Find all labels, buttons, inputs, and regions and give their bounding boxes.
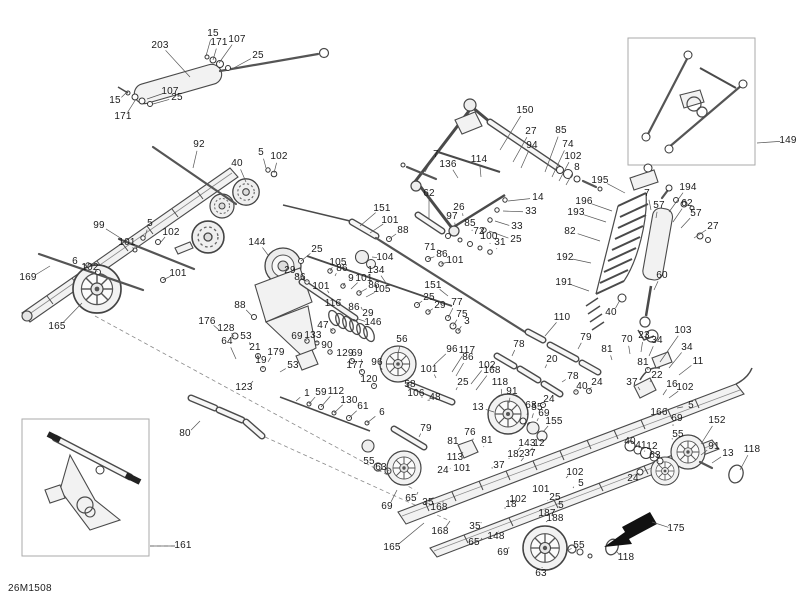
- leader-line-78: [512, 350, 515, 356]
- leader-line-118: [740, 455, 748, 470]
- leader-line-114: [480, 166, 481, 177]
- leader-line-3: [458, 326, 461, 331]
- leader-line-5: [145, 230, 147, 237]
- leader-line-129: [351, 358, 352, 361]
- leader-line-29: [428, 309, 433, 312]
- leader-line-64: [231, 347, 236, 359]
- leader-line-188: [546, 521, 547, 522]
- leader-line-128: [232, 333, 234, 337]
- leader-line-123: [250, 381, 253, 384]
- leader-line-69: [391, 490, 397, 502]
- leader-line-63: [388, 470, 389, 471]
- leader-line-20: [545, 365, 547, 368]
- leader-line-56: [398, 346, 400, 354]
- leader-line-149: [757, 141, 780, 143]
- leader-line-92: [193, 151, 197, 168]
- leader-line-25: [417, 301, 422, 305]
- leader-line-62: [673, 209, 682, 222]
- leader-line-171: [213, 49, 216, 60]
- leader-line-79: [578, 343, 581, 349]
- leader-line-33: [503, 211, 523, 212]
- leader-line-152: [701, 426, 712, 444]
- leader-line-91: [701, 450, 707, 455]
- leader-line-31: [496, 248, 497, 249]
- leader-line-25: [153, 99, 169, 104]
- leader-line-192: [573, 259, 591, 263]
- leader-line-86: [335, 273, 336, 276]
- leader-line-102: [559, 162, 569, 181]
- leader-line-196: [592, 204, 612, 211]
- leader-line-151: [360, 213, 376, 226]
- leader-line-69: [537, 418, 538, 421]
- leader-line-179: [268, 357, 271, 362]
- leader-line-101: [327, 291, 329, 293]
- leader-line-117: [452, 356, 462, 372]
- leader-line-34: [649, 346, 653, 356]
- leader-line-81: [611, 355, 612, 360]
- leader-line-65: [481, 538, 482, 540]
- leader-line-107: [219, 45, 232, 63]
- leader-line-90: [330, 351, 331, 352]
- leader-line-194: [669, 193, 683, 212]
- leader-line-65: [417, 492, 418, 495]
- leader-line-91: [509, 398, 510, 403]
- leader-line-27: [694, 230, 706, 238]
- leader-line-168: [476, 376, 487, 390]
- leader-line-103: [660, 336, 678, 362]
- leader-line-37: [521, 458, 524, 461]
- leader-line-5: [677, 407, 683, 408]
- leader-line-70: [629, 346, 630, 354]
- leader-line-12: [529, 448, 533, 452]
- leader-line-203: [166, 50, 190, 77]
- leader-line-29: [297, 274, 299, 276]
- leader-line-104: [372, 257, 377, 258]
- leader-line-107: [147, 94, 162, 99]
- leader-line-79: [419, 434, 421, 437]
- leader-line-14: [508, 199, 530, 201]
- leader-line-143: [518, 447, 520, 450]
- leader-line-101: [434, 375, 436, 378]
- leader-line-86: [428, 257, 434, 259]
- leader-line-55: [569, 548, 572, 550]
- leader-line-6: [83, 264, 87, 266]
- leader-line-193: [584, 215, 606, 222]
- leader-line-175: [652, 522, 668, 527]
- leader-line-47: [330, 329, 333, 331]
- leader-line-118: [501, 389, 502, 396]
- leader-line-102: [669, 391, 678, 398]
- leader-line-134: [381, 276, 388, 286]
- leader-line-7: [649, 200, 651, 210]
- leader-line-113: [461, 452, 463, 454]
- leader-line-78: [562, 379, 566, 382]
- leader-line-55: [376, 465, 377, 466]
- page-code: 26M1508: [8, 583, 52, 594]
- leader-line-165: [398, 523, 424, 544]
- leader-line-191: [572, 285, 589, 291]
- leader-line-59: [309, 397, 315, 404]
- leader-line-169: [35, 266, 50, 275]
- leader-line-187: [539, 516, 540, 517]
- leader-line-60: [654, 281, 658, 290]
- leader-line-155: [543, 426, 548, 432]
- leader-line-166: [666, 408, 667, 410]
- leader-line-110: [545, 322, 557, 336]
- leader-line-177: [361, 370, 362, 372]
- leader-line-88: [389, 234, 396, 239]
- leader-line-101: [133, 247, 134, 250]
- leader-line-23: [641, 342, 643, 352]
- leader-line-86: [456, 363, 464, 376]
- leader-line-176: [214, 325, 219, 330]
- leader-line-24: [589, 387, 591, 391]
- leader-line-86: [359, 289, 367, 293]
- leader-line-144: [262, 247, 268, 255]
- leader-line-15: [206, 40, 211, 56]
- leader-line-37: [638, 387, 640, 390]
- leader-lines-layer: [0, 0, 800, 597]
- leader-line-29: [361, 307, 362, 310]
- leader-line-151: [440, 289, 448, 296]
- leader-line-53: [280, 369, 286, 372]
- leader-line-22: [650, 380, 651, 382]
- leader-line-1: [296, 397, 300, 401]
- leader-line-25: [301, 253, 310, 261]
- leader-line-16: [663, 389, 667, 395]
- leader-line-96: [434, 354, 446, 365]
- leader-line-171: [128, 99, 136, 112]
- leader-line-101: [163, 276, 171, 280]
- leader-line-101: [441, 262, 447, 264]
- leader-line-11: [679, 365, 691, 375]
- leader-line-77: [448, 308, 453, 318]
- diagram-canvas: 2031517110725151711072515027948574102871…: [0, 0, 800, 597]
- leader-line-5: [264, 159, 266, 168]
- leader-line-6: [367, 416, 375, 423]
- leader-line-74: [552, 150, 564, 177]
- leader-line-102: [566, 476, 568, 478]
- leader-line-80: [191, 421, 200, 430]
- leader-line-27: [513, 137, 527, 162]
- leader-line-34: [669, 352, 682, 368]
- leader-line-63: [527, 411, 528, 415]
- leader-line-85: [545, 137, 558, 172]
- leader-line-9: [343, 283, 345, 286]
- leader-line-105: [330, 267, 332, 271]
- leader-line-25: [230, 59, 251, 70]
- leader-line-40: [241, 169, 246, 182]
- leader-line-165: [63, 303, 82, 323]
- leader-line-63: [657, 460, 659, 461]
- leader-line-116: [340, 299, 341, 301]
- leader-line-105: [366, 292, 375, 297]
- leader-line-81: [483, 446, 484, 447]
- leader-line-57: [656, 212, 657, 218]
- leader-line-15: [121, 92, 127, 97]
- leader-line-168: [445, 521, 450, 528]
- leader-line-55: [532, 413, 533, 418]
- leader-line-13: [486, 409, 494, 412]
- leader-line-94: [521, 151, 528, 168]
- leader-line-8: [566, 173, 573, 185]
- leader-line-195: [607, 184, 625, 193]
- leader-line-25: [489, 231, 508, 238]
- leader-line-7: [425, 160, 432, 172]
- leader-line-102: [161, 237, 165, 242]
- leader-line-57: [681, 218, 690, 228]
- leader-line-61: [349, 411, 357, 418]
- leader-line-71: [438, 250, 443, 252]
- leader-line-88: [246, 310, 252, 316]
- leader-line-102: [274, 163, 277, 173]
- leader-line-69: [361, 359, 362, 362]
- leader-line-99: [106, 229, 122, 239]
- leader-line-25: [456, 387, 457, 390]
- leader-line-33: [495, 221, 509, 225]
- leader-line-146: [358, 319, 365, 321]
- leader-line-136: [453, 170, 458, 178]
- leader-line-40: [616, 300, 620, 308]
- leader-line-82: [578, 234, 600, 241]
- leader-line-69: [304, 339, 307, 341]
- leader-line-118: [616, 551, 619, 555]
- leader-line-150: [500, 116, 521, 150]
- leader-line-112: [321, 396, 330, 407]
- leader-line-130: [334, 405, 343, 413]
- leader-line-75: [453, 320, 457, 326]
- leader-line-101: [351, 283, 358, 289]
- leader-line-5: [573, 487, 574, 488]
- leader-line-101: [370, 224, 383, 233]
- leader-line-13: [712, 457, 721, 463]
- leader-line-102: [471, 370, 482, 384]
